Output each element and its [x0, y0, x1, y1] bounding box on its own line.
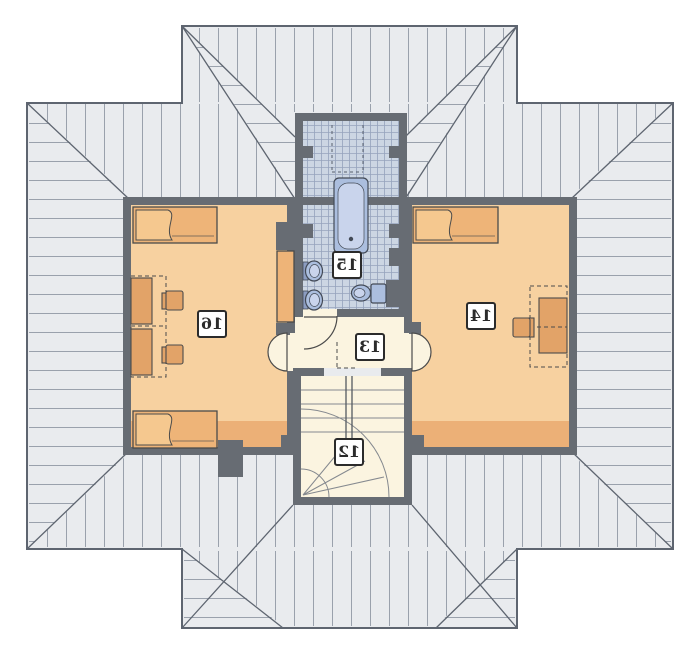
duct-block [389, 248, 403, 266]
bed-symbol [133, 411, 217, 448]
wall-pilaster [303, 146, 313, 158]
wall-pilaster [303, 224, 313, 238]
room-label-hall: 13 [355, 333, 385, 361]
wall-pilaster [389, 224, 399, 238]
wardrobe-symbol [277, 251, 294, 322]
room-number: 13 [359, 339, 381, 355]
wall-pilaster [412, 435, 424, 447]
wall-stair-right [404, 368, 412, 505]
toilet-stub-wall [386, 280, 399, 307]
room-label-bedroom-right: 14 [466, 302, 496, 330]
knee-strip-right [411, 421, 569, 447]
door-opening [404, 333, 412, 371]
wall-stair-top [293, 368, 324, 376]
hall-floor [295, 317, 404, 368]
floor-plan-svg [0, 0, 700, 658]
bed-symbol [133, 207, 217, 243]
room-label-stairs: 12 [334, 438, 364, 466]
wall-stair-bottom [293, 497, 412, 505]
wall-bath-top [295, 113, 407, 121]
washbasin-symbol [303, 290, 323, 310]
room-number: 12 [338, 444, 360, 460]
bed-symbol [413, 207, 498, 243]
wall-bath-left-ext [295, 113, 303, 197]
wall-stair-top [381, 368, 412, 376]
room-number: 15 [336, 257, 358, 273]
wall-left [123, 197, 131, 455]
wardrobe-block [276, 222, 301, 250]
wall-bath-right-ext [399, 113, 407, 197]
bathtub-symbol [334, 178, 368, 253]
floor-plan-canvas: 12 13 14 15 16 [0, 0, 700, 658]
chair-symbol [162, 291, 183, 310]
door-jamb [409, 322, 421, 334]
door-opening [287, 333, 295, 371]
washbasin-symbol [303, 261, 323, 281]
chair-symbol [513, 318, 534, 337]
room-label-bedroom-left: 16 [197, 310, 227, 338]
roof-hatch-region [294, 104, 406, 112]
chimney [218, 440, 243, 477]
wall-pilaster [389, 146, 399, 158]
room-label-bathroom: 15 [332, 251, 362, 279]
wall-bottom [412, 447, 577, 455]
room-number: 14 [470, 308, 492, 324]
room-number: 16 [201, 316, 223, 332]
door-opening [303, 309, 337, 317]
wall-stair-left [293, 368, 301, 505]
chair-symbol [162, 345, 183, 364]
wall-pilaster [281, 435, 293, 447]
wall-bath-bottom [337, 309, 412, 317]
wall-right [569, 197, 577, 455]
